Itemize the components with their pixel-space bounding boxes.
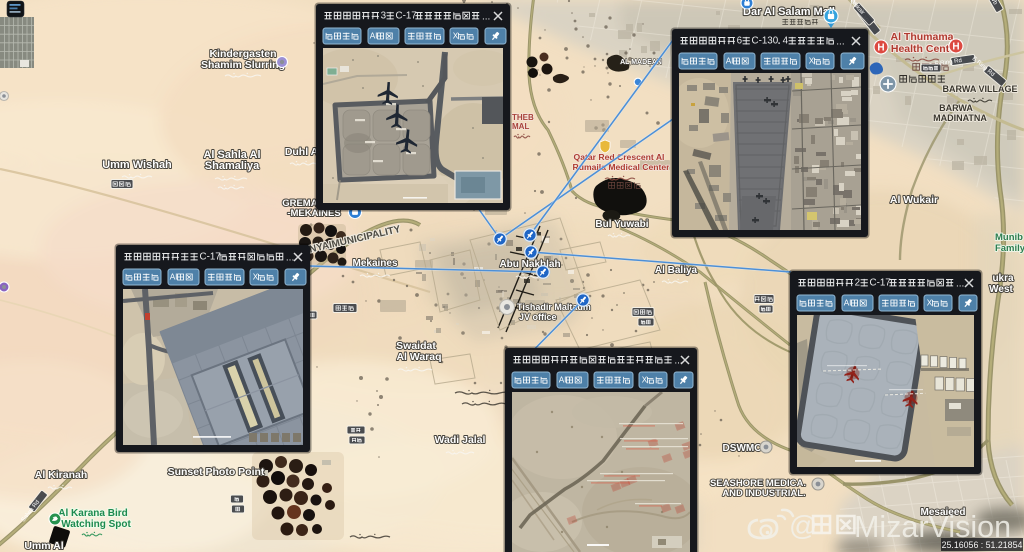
svg-text:4: 4 xyxy=(783,35,789,46)
svg-text:ukra: ukra xyxy=(992,273,1014,284)
svg-text:AI: AI xyxy=(844,299,852,308)
svg-text:C-130: C-130 xyxy=(752,35,779,46)
svg-text:25.16056 : 51.21854: 25.16056 : 51.21854 xyxy=(942,540,1023,550)
svg-text:AI: AI xyxy=(170,273,178,282)
svg-text:AI: AI xyxy=(370,32,378,41)
svg-text:X: X xyxy=(453,32,459,41)
svg-text:Dar Al Salam Mall: Dar Al Salam Mall xyxy=(743,6,835,18)
svg-text:X: X xyxy=(253,273,259,282)
svg-text:...: ... xyxy=(956,279,964,290)
svg-text:2: 2 xyxy=(855,277,860,288)
svg-text:6: 6 xyxy=(737,35,743,46)
svg-text:Umm Wishah: Umm Wishah xyxy=(102,159,172,171)
svg-text:Al Karana Bird: Al Karana Bird xyxy=(58,508,127,519)
svg-text:Bul Yuwabi: Bul Yuwabi xyxy=(595,219,648,230)
svg-text:Munib: Munib xyxy=(995,232,1023,243)
svg-text:MAL: MAL xyxy=(512,122,529,131)
svg-text:Rumaila Medical Center: Rumaila Medical Center xyxy=(573,162,671,172)
svg-text:Family: Family xyxy=(995,243,1024,254)
svg-text:THEB: THEB xyxy=(512,113,534,122)
svg-text:DSWMC: DSWMC xyxy=(723,443,762,454)
svg-text:AND INDUSTRIAL.: AND INDUSTRIAL. xyxy=(722,488,805,499)
svg-text:Umm Al: Umm Al xyxy=(24,540,63,552)
svg-text:MADINATNA: MADINATNA xyxy=(933,113,987,123)
svg-text:Al Waraq: Al Waraq xyxy=(396,351,441,363)
svg-text:C-17: C-17 xyxy=(396,10,417,21)
svg-text:Shamaliya: Shamaliya xyxy=(205,160,260,172)
svg-text:C-17: C-17 xyxy=(200,251,221,262)
svg-text:3: 3 xyxy=(381,10,387,21)
svg-text:X: X xyxy=(927,299,933,308)
svg-text:Al Baliya: Al Baliya xyxy=(655,265,698,276)
svg-text:Shamim Slurring: Shamim Slurring xyxy=(201,59,285,71)
svg-text:Al Wukair: Al Wukair xyxy=(890,194,938,206)
svg-text:BARWA: BARWA xyxy=(939,103,973,113)
svg-text:Al Kiranah: Al Kiranah xyxy=(35,469,88,481)
svg-text:X: X xyxy=(809,57,815,66)
svg-text:AI: AI xyxy=(726,57,734,66)
svg-text:Wadi Jalal: Wadi Jalal xyxy=(435,434,486,446)
svg-text:West: West xyxy=(989,284,1013,295)
svg-text:...: ... xyxy=(286,253,294,264)
svg-text:Abu Nakhlah: Abu Nakhlah xyxy=(499,259,560,270)
svg-text:JV office: JV office xyxy=(519,312,557,322)
svg-text:BARWA VILLAGE: BARWA VILLAGE xyxy=(942,84,1017,94)
svg-text:...: ... xyxy=(836,37,844,48)
svg-text:H: H xyxy=(952,42,959,53)
svg-text:Watching Spot: Watching Spot xyxy=(61,519,131,530)
svg-text:C-17: C-17 xyxy=(870,277,891,288)
svg-text:...: ... xyxy=(482,12,490,23)
svg-text:Al Thumama: Al Thumama xyxy=(890,31,953,43)
svg-text:AI: AI xyxy=(559,376,567,385)
svg-text:H: H xyxy=(877,43,884,54)
svg-text:X: X xyxy=(642,376,648,385)
svg-text:Sunset Photo Point: Sunset Photo Point xyxy=(168,466,265,478)
